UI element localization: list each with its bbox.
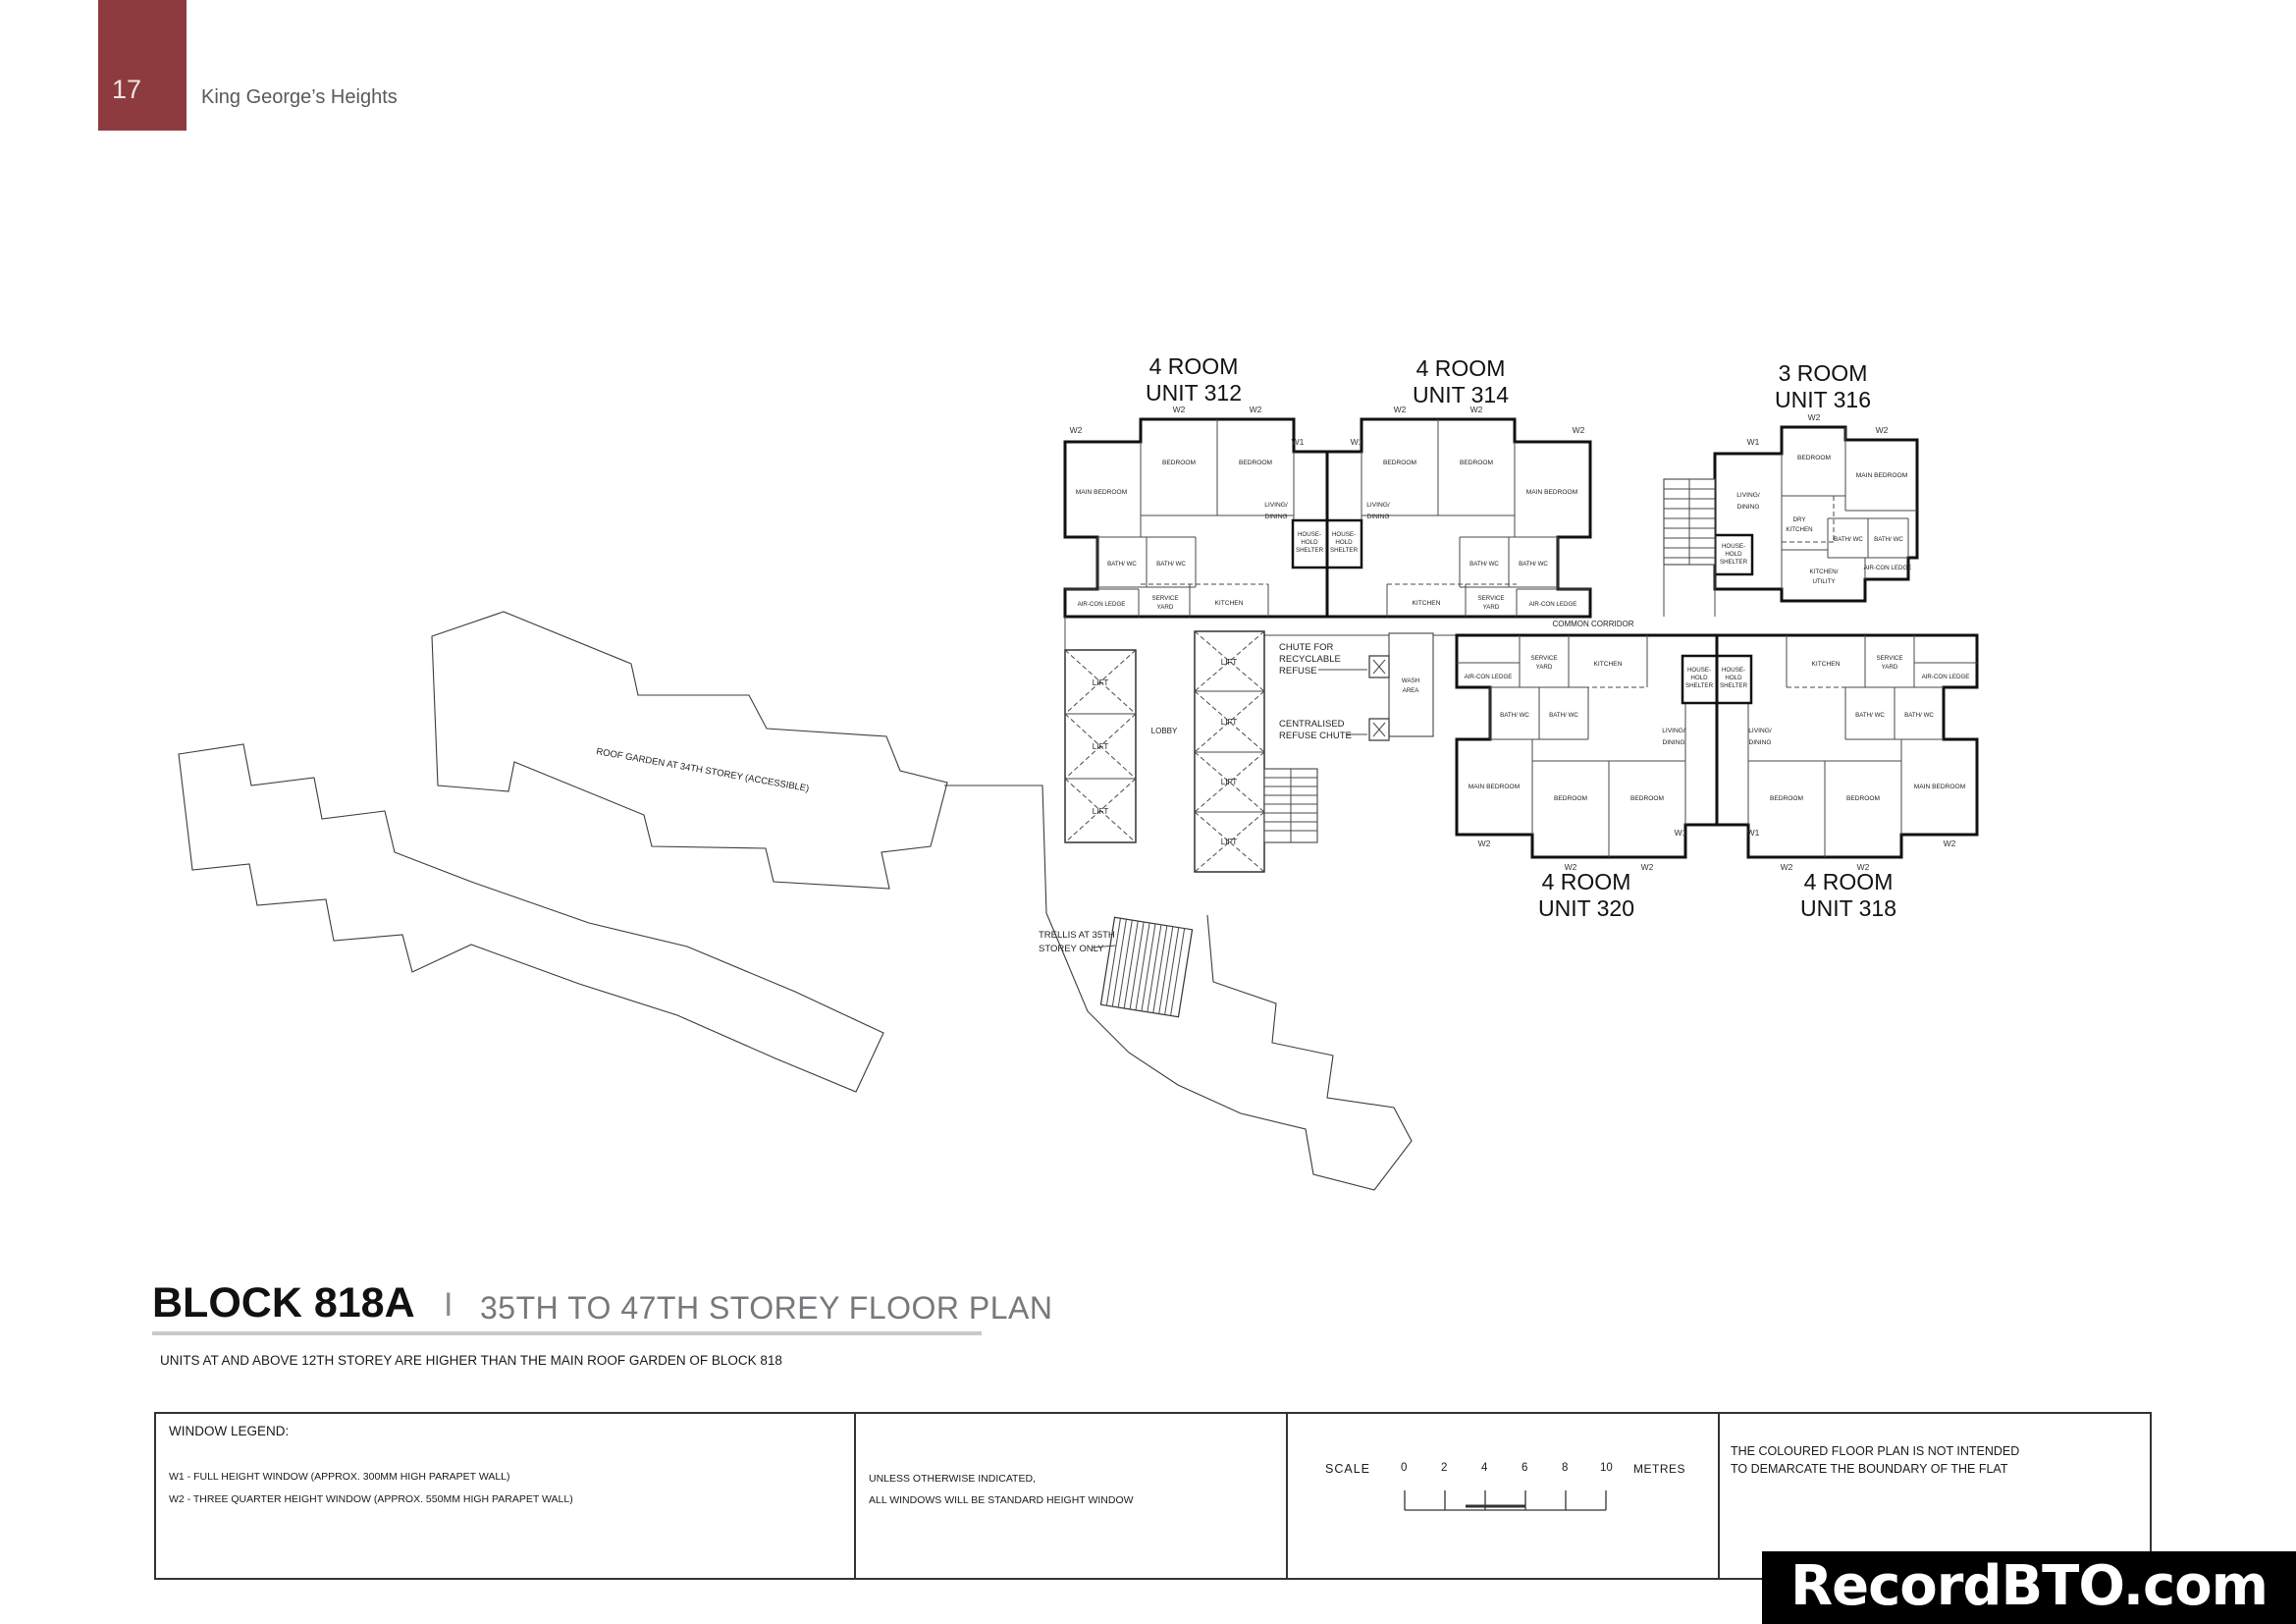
centralised-chute: CENTRALISED REFUSE CHUTE: [1279, 719, 1389, 741]
unit-316: LIVING/ DINING BEDROOM MAIN BEDROOM DRY …: [1715, 360, 1917, 601]
room-bedroom: BEDROOM: [1460, 460, 1493, 466]
staircase-upper: [1664, 479, 1715, 617]
wash-area-label: AREA: [1403, 687, 1420, 694]
room-bath-wc: BATH/ WC: [1904, 712, 1934, 719]
window-w1: W1: [1747, 828, 1760, 838]
window-w2: W2: [1478, 839, 1491, 848]
windows-note: ALL WINDOWS WILL BE STANDARD HEIGHT WIND…: [869, 1494, 1134, 1506]
room-kitchen: KITCHEN: [1215, 600, 1244, 607]
household-shelters-lower: HOUSE- HOLD SHELTER HOUSE- HOLD SHELTER: [1682, 656, 1751, 703]
window-w2: W2: [1808, 412, 1821, 422]
window-w2: W2: [1781, 862, 1793, 872]
block-title: BLOCK 818A: [152, 1279, 415, 1327]
lobby-label: LOBBY: [1151, 727, 1178, 735]
room-household-shelter: SHELTER: [1296, 547, 1324, 554]
room-bath-wc: BATH/ WC: [1834, 536, 1863, 543]
window-w2: W2: [1573, 425, 1585, 435]
room-household-shelter: HOUSE-: [1298, 531, 1321, 538]
window-w2: W2: [1876, 425, 1889, 435]
scale-tick: 4: [1481, 1462, 1487, 1474]
room-bedroom: BEDROOM: [1383, 460, 1416, 466]
window-w2: W2: [1070, 425, 1083, 435]
scale-tick: 10: [1600, 1462, 1613, 1474]
lift-label: LIFT: [1093, 742, 1109, 751]
boundary-note: THE COLOURED FLOOR PLAN IS NOT INTENDED: [1731, 1444, 2019, 1458]
room-service-yard: YARD: [1483, 604, 1500, 611]
room-bath-wc: BATH/ WC: [1519, 561, 1548, 568]
trellis-label-1: TRELLIS AT 35TH: [1039, 930, 1115, 941]
storey-title: 35TH TO 47TH STOREY FLOOR PLAN: [480, 1290, 1052, 1326]
scale-tick: 8: [1562, 1462, 1568, 1474]
household-shelters-upper: HOUSE- HOLD SHELTER HOUSE- HOLD SHELTER: [1293, 520, 1362, 568]
storey-note: UNITS AT AND ABOVE 12TH STOREY ARE HIGHE…: [160, 1353, 782, 1368]
window-legend-w1: W1 - FULL HEIGHT WINDOW (APPROX. 300MM H…: [169, 1471, 510, 1483]
unit-314-number: UNIT 314: [1413, 382, 1509, 407]
room-bedroom: BEDROOM: [1770, 795, 1803, 802]
room-main-bedroom: MAIN BEDROOM: [1914, 784, 1965, 790]
wash-area: [1389, 633, 1433, 736]
unit-318-title: 4 ROOM: [1804, 869, 1894, 894]
room-aircon-ledge: AIR-CON LEDGE: [1078, 601, 1126, 608]
scale-label: SCALE: [1325, 1462, 1370, 1476]
room-main-bedroom: MAIN BEDROOM: [1856, 472, 1907, 479]
title-separator: I: [444, 1286, 453, 1325]
room-household-shelter: HOLD: [1301, 539, 1318, 546]
room-living: LIVING/: [1264, 502, 1288, 509]
unit-312-title: 4 ROOM: [1149, 353, 1239, 379]
room-service-yard: SERVICE: [1477, 595, 1504, 602]
boundary-note: TO DEMARCATE THE BOUNDARY OF THE FLAT: [1731, 1462, 2007, 1476]
window-w1: W1: [1747, 437, 1760, 447]
unit-314: LIVING/ DINING BEDROOM BEDROOM MAIN BEDR…: [1327, 355, 1590, 617]
room-aircon-ledge: AIR-CON LEDGE: [1922, 674, 1970, 680]
room-household-shelter: HOLD: [1690, 675, 1708, 681]
window-w2: W2: [1944, 839, 1956, 848]
room-main-bedroom: MAIN BEDROOM: [1076, 489, 1127, 496]
room-bedroom: BEDROOM: [1554, 795, 1587, 802]
scale-unit: METRES: [1633, 1462, 1685, 1476]
unit-316-title: 3 ROOM: [1779, 360, 1868, 386]
room-household-shelter: HOUSE-: [1722, 667, 1745, 674]
room-bath-wc: BATH/ WC: [1156, 561, 1186, 568]
window-w2: W2: [1641, 862, 1654, 872]
room-household-shelter: HOUSE-: [1687, 667, 1711, 674]
room-household-shelter: SHELTER: [1720, 682, 1748, 689]
room-household-shelter: HOLD: [1725, 675, 1742, 681]
unit-314-title: 4 ROOM: [1416, 355, 1506, 381]
unit-320-number: UNIT 320: [1538, 895, 1634, 921]
title-rule: [152, 1331, 982, 1335]
room-service-yard: YARD: [1882, 664, 1898, 671]
scale-tick: 0: [1401, 1462, 1407, 1474]
room-dining: DINING: [1736, 504, 1759, 511]
chute-label: RECYCLABLE: [1279, 654, 1341, 665]
common-corridor-label: COMMON CORRIDOR: [1552, 620, 1633, 628]
unit-318: LIVING/ DINING BEDROOM BEDROOM MAIN BEDR…: [1717, 635, 1977, 921]
window-legend-w2: W2 - THREE QUARTER HEIGHT WINDOW (APPROX…: [169, 1493, 573, 1505]
room-household-shelter: SHELTER: [1330, 547, 1359, 554]
room-service-yard: YARD: [1536, 664, 1553, 671]
unit-320-title: 4 ROOM: [1542, 869, 1631, 894]
wash-area-label: WASH: [1402, 677, 1419, 684]
room-bath-wc: BATH/ WC: [1855, 712, 1885, 719]
floor-plan-drawing: ROOF GARDEN AT 34TH STOREY (ACCESSIBLE) …: [0, 0, 2296, 1624]
room-living: LIVING/: [1736, 492, 1760, 499]
unit-318-number: UNIT 318: [1800, 895, 1896, 921]
room-bedroom: BEDROOM: [1797, 455, 1831, 461]
unit-320: MAIN BEDROOM BEDROOM BEDROOM LIVING/ DIN…: [1457, 635, 1717, 921]
window-w1: W1: [1675, 828, 1687, 838]
windows-note: UNLESS OTHERWISE INDICATED,: [869, 1473, 1036, 1485]
floor-plan-page: 17 King George’s Heights ROOF GARDEN AT …: [0, 0, 2296, 1624]
room-dry-kitchen: DRY: [1793, 516, 1806, 523]
room-aircon-ledge: AIR-CON LEDGE: [1465, 674, 1513, 680]
room-main-bedroom: MAIN BEDROOM: [1468, 784, 1520, 790]
lift-label: LIFT: [1221, 718, 1238, 727]
window-legend-title: WINDOW LEGEND:: [169, 1424, 289, 1438]
chute-label: CHUTE FOR: [1279, 642, 1334, 653]
lift-label: LIFT: [1093, 807, 1109, 816]
room-main-bedroom: MAIN BEDROOM: [1526, 489, 1577, 496]
room-household-shelter: HOLD: [1725, 551, 1742, 558]
window-w2: W2: [1173, 405, 1186, 414]
chute-label: REFUSE: [1279, 666, 1317, 677]
room-service-yard: SERVICE: [1876, 655, 1902, 662]
room-kitchen: KITCHEN: [1594, 661, 1623, 668]
window-w1: W1: [1292, 437, 1305, 447]
window-w1: W1: [1351, 437, 1363, 447]
staircase-lower: [1264, 769, 1317, 842]
room-living: LIVING/: [1748, 728, 1772, 734]
recyclable-chute: CHUTE FOR RECYCLABLE REFUSE: [1279, 642, 1389, 677]
window-w2: W2: [1394, 405, 1407, 414]
lift-label: LIFT: [1221, 658, 1238, 667]
lift-label: LIFT: [1093, 678, 1109, 687]
room-dry-kitchen: KITCHEN: [1786, 526, 1812, 533]
room-bath-wc: BATH/ WC: [1874, 536, 1903, 543]
room-household-shelter: SHELTER: [1720, 559, 1748, 566]
room-dining: DINING: [1662, 739, 1684, 746]
room-bath-wc: BATH/ WC: [1549, 712, 1578, 719]
scale-tick: 6: [1522, 1462, 1527, 1474]
window-w2: W2: [1250, 405, 1262, 414]
room-aircon-ledge: AIR-CON LEDGE: [1864, 565, 1912, 571]
room-kitchen-utility: KITCHEN/: [1810, 568, 1839, 575]
room-bath-wc: BATH/ WC: [1469, 561, 1499, 568]
room-service-yard: SERVICE: [1530, 655, 1557, 662]
room-household-shelter: HOUSE-: [1332, 531, 1356, 538]
room-household-shelter: HOUSE-: [1722, 543, 1745, 550]
room-bedroom: BEDROOM: [1162, 460, 1196, 466]
unit-312-number: UNIT 312: [1146, 380, 1242, 406]
room-household-shelter: HOLD: [1335, 539, 1353, 546]
room-living: LIVING/: [1366, 502, 1390, 509]
room-bath-wc: BATH/ WC: [1500, 712, 1529, 719]
lift-label: LIFT: [1221, 778, 1238, 786]
room-bath-wc: BATH/ WC: [1107, 561, 1137, 568]
room-dining: DINING: [1264, 514, 1287, 520]
unit-316-number: UNIT 316: [1775, 387, 1871, 412]
lift-label: LIFT: [1221, 838, 1238, 846]
room-aircon-ledge: AIR-CON LEDGE: [1529, 601, 1577, 608]
unit-312: MAIN BEDROOM BEDROOM BEDROOM LIVING/ DIN…: [1065, 353, 1327, 617]
chute-label: REFUSE CHUTE: [1279, 731, 1352, 741]
room-kitchen: KITCHEN: [1812, 661, 1841, 668]
room-bedroom: BEDROOM: [1846, 795, 1880, 802]
trellis-label-2: STOREY ONLY: [1039, 944, 1104, 954]
lift-core: LIFT LIFT LIFT LIFT LIFT LIFT LIFT LOBBY…: [1065, 631, 1433, 872]
room-living: LIVING/: [1662, 728, 1685, 734]
room-kitchen-utility: UTILITY: [1812, 578, 1835, 585]
chute-label: CENTRALISED: [1279, 719, 1345, 730]
watermark-banner: RecordBTO.com: [1762, 1551, 2296, 1624]
room-dining: DINING: [1366, 514, 1389, 520]
room-kitchen: KITCHEN: [1413, 600, 1441, 607]
room-bedroom: BEDROOM: [1239, 460, 1272, 466]
room-service-yard: SERVICE: [1151, 595, 1178, 602]
trellis-callout: TRELLIS AT 35TH STOREY ONLY: [1039, 930, 1116, 954]
scale-tick: 2: [1441, 1462, 1447, 1474]
room-service-yard: YARD: [1157, 604, 1174, 611]
room-dining: DINING: [1748, 739, 1771, 746]
room-household-shelter: SHELTER: [1685, 682, 1714, 689]
room-bedroom: BEDROOM: [1630, 795, 1664, 802]
